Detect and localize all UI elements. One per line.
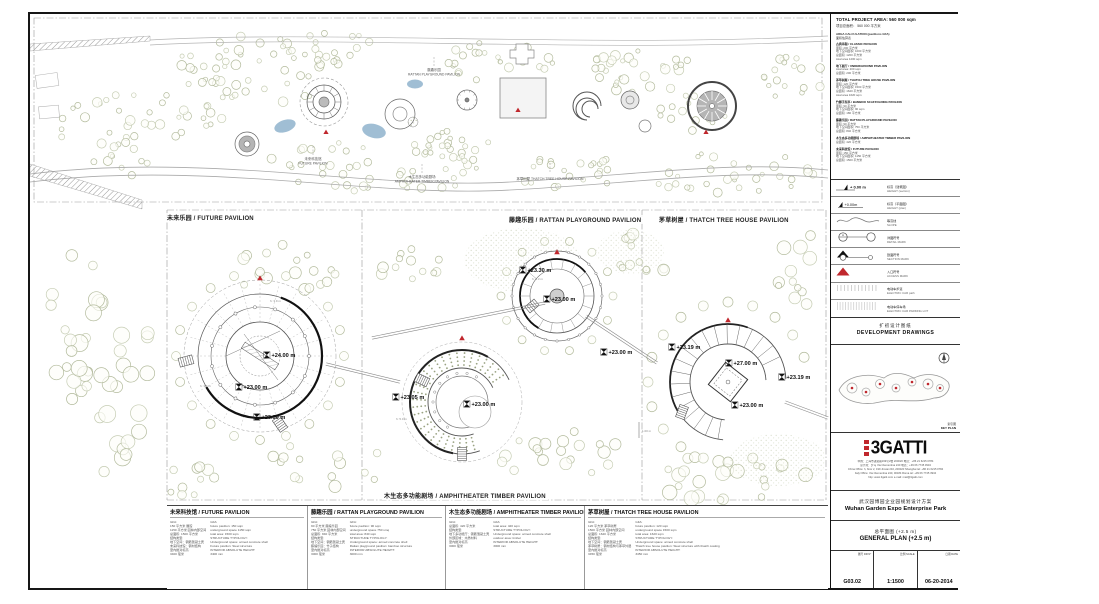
- area-calc-title: AREA CALCULATION (pavilions GFA) 面积估算表: [836, 32, 955, 40]
- site-label-amphitheater-en: AMPHITHEATER TIMBER PAVILION: [395, 180, 450, 184]
- gfa-line: 3400 mm: [210, 552, 268, 556]
- legend-row-electric-parking: 电动车停车场ELECTRIC CAR PARKING LOT: [831, 300, 960, 317]
- legend-symbol-text: +0.00m: [845, 203, 858, 207]
- panel-header-amphitheater: 木生态多功能剧场 / AMPHITHEATER TIMBER PAVILION: [382, 491, 548, 500]
- development-drawings-label: 扩初设计图纸 DEVELOPMENT DRAWINGS: [831, 318, 960, 345]
- elevation-label: +23.00 m: [552, 297, 576, 303]
- legend-label-en: DETAIL MARK: [887, 240, 956, 244]
- gfa-block-title: 木生态多功能剧场 / AMPHITHEATER TIMBER PAVILION: [449, 508, 581, 518]
- dim-label: h: 3.9 m: [270, 299, 281, 303]
- gfa-col-en: GFA:total area: 420 sqmSTRUCTURE TYPOLOG…: [493, 520, 551, 549]
- legend-label-en: ELECTRIC CAR PARKING LOT: [887, 309, 956, 313]
- area-entries: 古典亭阁 / CLASSIC PAVILION面积: 200 平方米地下空间面积…: [836, 43, 955, 162]
- site-label-rattan-en: RATTAN PLAYGROUND PAVILION: [408, 73, 461, 77]
- legend-row-section-mark: 剖面符号SECTION MARK: [831, 248, 960, 265]
- gfa-col-zh: GFA:150 平方米 展馆1150 平方米 园林内部空间总面积: 1500 平…: [170, 520, 206, 557]
- area-entry-line: 总面积: 1500 平方米: [836, 159, 955, 163]
- area-entry-line: total area 1200 sqm: [836, 58, 955, 62]
- elevation-label: +23.00 m: [472, 402, 496, 408]
- dim-label: h: 3.6 m: [200, 384, 211, 388]
- legend-label-en: HEIGHT (plan): [887, 206, 956, 210]
- dim-label: h: 5.0 m: [396, 417, 407, 421]
- gfa-block-1: 藤趣乐园 / RATTAN PLAYGROUND PAVILIONGFA:90 …: [308, 506, 446, 589]
- site-label-thatch: 茅草树屋 THATCH TREE HOUSE PAVILION: [516, 176, 584, 181]
- logo-red-squares-icon: [864, 440, 869, 456]
- site-plan: [235, 44, 736, 156]
- plan-drawing: 未来科技馆FUTURE PAVILION藤趣乐园RATTAN PLAYGROUN…: [30, 14, 830, 588]
- gfa-col-zh: GFA:90 平方米 藤编乐园750 平方米 园林内部空间总面积: 840 平方…: [311, 520, 346, 557]
- dim-label: h: 3.3 m: [532, 277, 543, 281]
- drawing-title-en: GENERAL PLAN (+2.5 m): [836, 536, 955, 542]
- access-mark-icon: [835, 264, 885, 278]
- elevation-label: +24.00 m: [272, 353, 296, 359]
- field-value: G03.02: [843, 579, 861, 585]
- elevation-label: +23.00 m: [740, 403, 764, 409]
- sheet-fields: 图号 DR N°G03.02比例 SCALE1:1500日期 DATE06-20…: [831, 551, 960, 588]
- gfa-col-en: GFA:future pavilion: 120 sqmunderground …: [635, 520, 719, 557]
- legend-label-en: HEIGHT (section): [887, 189, 956, 193]
- site-label-future-zh: 未来科技馆: [305, 156, 323, 161]
- address-line: http: www.3gatti.com e-mail: mail@3gatti…: [836, 476, 955, 480]
- legend-row-height-plan: +0.00m标高（平面图）HEIGHT (plan): [831, 197, 960, 214]
- gfa-col-en: GFA:future pavilion: 90 sqmunderground s…: [350, 520, 412, 557]
- panel-header-thatch: 茅草树屋 / THATCH TREE HOUSE PAVILION: [657, 215, 791, 224]
- area-entry: 古典亭阁 / CLASSIC PAVILION面积: 200 平方米地下空间面积…: [836, 43, 955, 61]
- project-name: 武汉园博园企业园规划设计方案 Wuhan Garden Expo Enterpr…: [831, 491, 960, 521]
- gfa-text-strip: 未来科技馆 / FUTURE PAVILIONGFA:150 平方米 展馆115…: [167, 505, 828, 589]
- sheet-field-0: 图号 DR N°G03.02: [831, 551, 874, 588]
- legend-row-electric-path: 电动车步道ELECTRIC CAR path: [831, 283, 960, 300]
- gfa-line: 3450 毫米: [588, 552, 631, 556]
- logo-section: 3GATTI 中国：上海市进贤路199号2楼 200020 电话：+86 21 …: [831, 433, 960, 491]
- area-entry: 未来科技馆 / FUTURE PAVILION面积: 150 平方米地下空间面积…: [836, 148, 955, 163]
- gfa-col-zh: GFA:总面积: 420 平方米结构类型:地下多功能厅：钢筋混凝土壳外部区域：木…: [449, 520, 489, 549]
- area-entry-line: 总面积: 200 平方米: [836, 72, 955, 76]
- legend-label-en: SLOPE: [887, 223, 956, 227]
- elevation-label: +23.05 m: [401, 395, 425, 401]
- elevation-label: +23.30 m: [528, 268, 552, 274]
- area-entry: 茅草树屋 / THATCH TREE HOUSE PAVILION面积: 120…: [836, 79, 955, 97]
- office-address: 中国：上海市进贤路199号2楼 200020 电话：+86 21 6215 07…: [836, 460, 955, 480]
- elevation-label: +23.19 m: [787, 375, 811, 381]
- gfa-block-0: 未来科技馆 / FUTURE PAVILIONGFA:150 平方米 展馆115…: [167, 506, 308, 589]
- page-canvas: 未来科技馆FUTURE PAVILION藤趣乐园RATTAN PLAYGROUN…: [0, 0, 1099, 604]
- area-calculation-section: TOTAL PROJECT AREA: 560 000 sqm 项目总面积： 5…: [831, 14, 960, 180]
- area-entry: 竹脚手架亭 / BAMBOO SCAFFOLDING PAVILION面积: 9…: [836, 101, 955, 116]
- field-label: 比例 SCALE: [900, 552, 914, 556]
- site-label-rattan-zh: 藤趣乐园: [427, 67, 441, 72]
- sheet-field-1: 比例 SCALE1:1500: [874, 551, 917, 588]
- project-name-zh: 武汉园博园企业园规划设计方案: [836, 499, 955, 505]
- field-label: 图号 DR N°: [858, 552, 871, 556]
- title-block: TOTAL PROJECT AREA: 560 000 sqm 项目总面积： 5…: [830, 14, 960, 588]
- area-entry-line: total area 1620 sqm: [836, 94, 955, 98]
- sheet-field-2: 日期 DATE06-20-2014: [918, 551, 960, 588]
- electric-parking-icon: [835, 299, 885, 313]
- field-label: 日期 DATE: [945, 552, 958, 556]
- legend-label-en: SECTION MARK: [887, 257, 956, 261]
- field-value: 1:1500: [887, 579, 904, 585]
- key-plan-en: KEY PLAN: [941, 426, 956, 430]
- height-plan-icon: +0.00m: [835, 196, 885, 210]
- elevation-label: +23.00 m: [262, 415, 286, 421]
- company-logo: 3GATTI: [836, 438, 955, 458]
- panel-header-future: 未来乐园 / FUTURE PAVILION: [165, 213, 256, 222]
- key-plan: 索引图 KEY PLAN: [831, 345, 960, 433]
- area-entry-line: 总面积: 180 平方米: [836, 112, 955, 116]
- drawing-title-zh: 总平面图 (+2.5 m): [836, 529, 955, 535]
- slope-icon: [835, 213, 885, 227]
- area-calc-title-zh: 面积估算表: [836, 36, 955, 40]
- development-zh: 扩初设计图纸: [836, 323, 955, 329]
- legend-row-slope: 等高线SLOPE: [831, 214, 960, 231]
- gfa-col-en: GFA:future pavilion: 150 sqmunderground …: [210, 520, 268, 557]
- project-name-en: Wuhan Garden Expo Enterprise Park: [836, 506, 955, 512]
- gfa-block-2: 木生态多功能剧场 / AMPHITHEATER TIMBER PAVILIONG…: [446, 506, 585, 589]
- legend-row-height-section: + 0.00 m标高（建筑图）HEIGHT (section): [831, 180, 960, 197]
- development-en: DEVELOPMENT DRAWINGS: [836, 330, 955, 336]
- legend-symbol-text: A: [842, 233, 844, 237]
- legend-row-access-mark: 入口符号ACCESS MARK: [831, 265, 960, 282]
- legend-symbol-text: + 0.00 m: [850, 184, 866, 189]
- gfa-line: 3000 mm: [350, 552, 412, 556]
- gfa-line: 3400 毫米: [170, 552, 206, 556]
- drawing-title: 总平面图 (+2.5 m) GENERAL PLAN (+2.5 m): [831, 521, 960, 551]
- gfa-line: 3450 mm: [635, 552, 719, 556]
- gfa-block-3: 茅草树屋 / THATCH TREE HOUSE PAVILIONGFA:120…: [585, 506, 828, 589]
- height-section-icon: + 0.00 m: [835, 179, 885, 193]
- elevation-label: +27.00 m: [734, 361, 758, 367]
- gfa-line: 3000 毫米: [311, 552, 346, 556]
- gfa-block-title: 藤趣乐园 / RATTAN PLAYGROUND PAVILION: [311, 508, 442, 518]
- dim-label: 1.00 m: [642, 429, 652, 433]
- area-entry: 木生态多功能剧场 / AMPHITHEATER TIMBER PAVILION总…: [836, 137, 955, 144]
- key-plan-caption: 索引图 KEY PLAN: [941, 422, 956, 430]
- legend-row-detail-mark: A详图符号DETAIL MARK: [831, 231, 960, 248]
- panel-header-rattan: 藤趣乐园 / RATTAN PLAYGROUND PAVILION: [507, 215, 643, 224]
- total-project-area-zh: 项目总面积： 560 000 平方米: [836, 23, 955, 28]
- gfa-line: 3000 毫米: [449, 544, 489, 548]
- detail-mark-icon: A: [835, 230, 885, 244]
- total-project-area: TOTAL PROJECT AREA: 560 000 sqm: [836, 17, 955, 22]
- legend: + 0.00 m标高（建筑图）HEIGHT (section)+0.00m标高（…: [831, 180, 960, 318]
- elevation-label: +23.19 m: [677, 345, 701, 351]
- field-value: 06-20-2014: [925, 579, 953, 585]
- gfa-line: 3000 mm: [493, 544, 551, 548]
- panel-borders: [34, 18, 826, 500]
- site-label-future-en: FUTURE PAVILION: [298, 162, 328, 166]
- logo-text: 3GATTI: [871, 437, 927, 459]
- key-plan-thumbnail: [836, 348, 956, 426]
- gfa-block-title: 茅草树屋 / THATCH TREE HOUSE PAVILION: [588, 508, 825, 518]
- site-label-amphitheater-zh: 木生态多功能剧场: [408, 174, 436, 179]
- gfa-block-title: 未来科技馆 / FUTURE PAVILION: [170, 508, 304, 518]
- area-entry-line: 总面积: 420 平方米: [836, 141, 955, 145]
- elevation-label: +23.00 m: [244, 385, 268, 391]
- legend-label-en: ACCESS MARK: [887, 274, 956, 278]
- area-entry-line: 总面积: 840 平方米: [836, 130, 955, 134]
- section-mark-icon: [835, 247, 885, 261]
- legend-label-en: ELECTRIC CAR path: [887, 291, 956, 295]
- electric-path-icon: [835, 281, 885, 295]
- area-entry: 藤趣乐园 / RATTAN PLAYGROUND PAVILION面积: 90 …: [836, 119, 955, 134]
- elevation-label: +23.00 m: [609, 350, 633, 356]
- drawing-sheet: 未来科技馆FUTURE PAVILION藤趣乐园RATTAN PLAYGROUN…: [28, 12, 958, 590]
- area-entry: 地下展厅 / UNDERGROUND PAVILIONtotal area: 2…: [836, 65, 955, 76]
- gfa-col-zh: GFA:120 平方米 茅草树屋1500 平方米 园林内部空间总面积: 1620…: [588, 520, 631, 557]
